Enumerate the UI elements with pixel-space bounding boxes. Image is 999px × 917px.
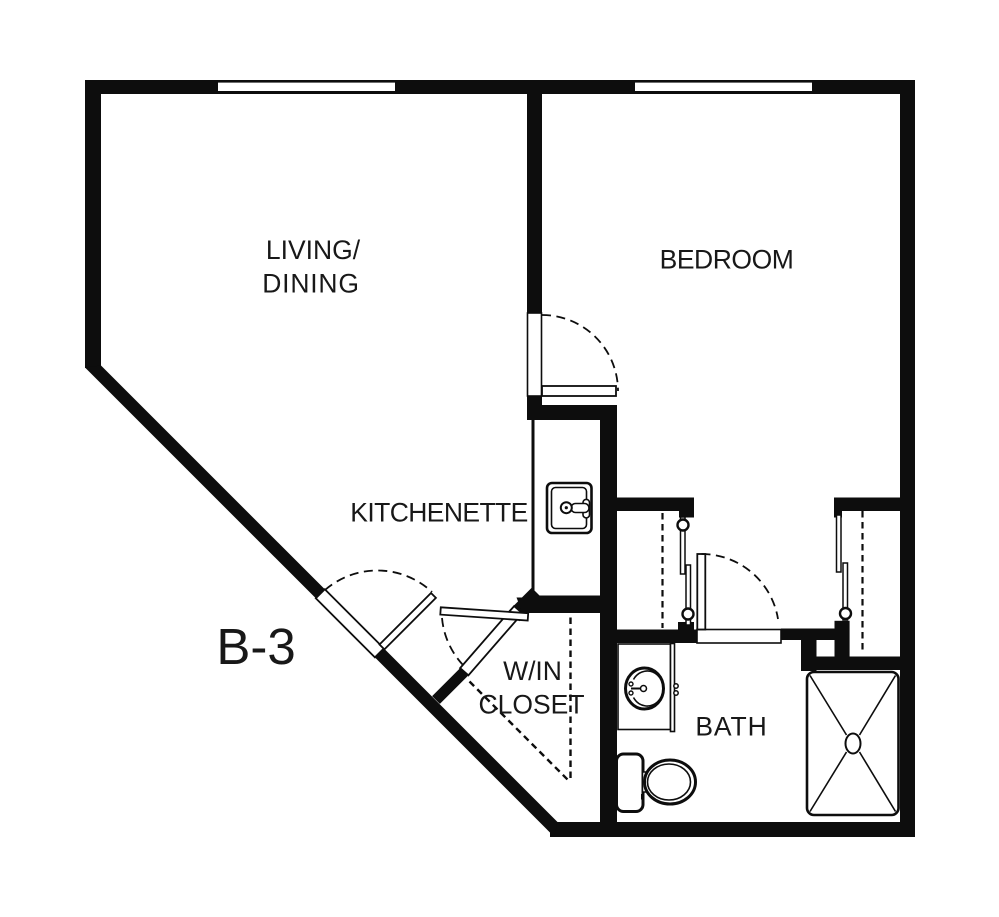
svg-text:B-3: B-3 bbox=[216, 618, 295, 675]
svg-text:CLOSET: CLOSET bbox=[478, 690, 584, 720]
svg-text:W/IN: W/IN bbox=[503, 656, 562, 686]
svg-text:BATH: BATH bbox=[695, 712, 767, 742]
svg-text:KITCHENETTE: KITCHENETTE bbox=[350, 498, 527, 528]
svg-text:DINING: DINING bbox=[262, 269, 360, 299]
svg-text:BEDROOM: BEDROOM bbox=[660, 245, 794, 275]
svg-text:LIVING/: LIVING/ bbox=[266, 235, 361, 265]
